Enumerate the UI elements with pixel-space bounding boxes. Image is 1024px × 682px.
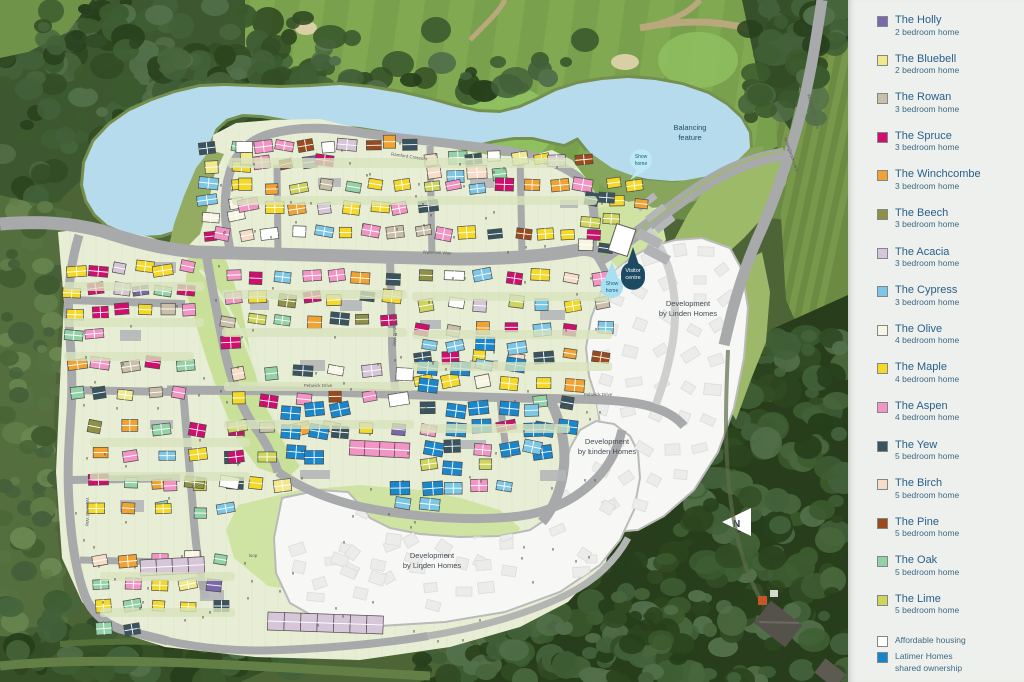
svg-text:home: home [606,288,619,294]
svg-text:Watermill Way: Watermill Way [423,250,453,256]
svg-text:feature: feature [678,133,701,142]
svg-text:home: home [635,161,648,167]
svg-text:Development: Development [585,437,630,446]
svg-text:centre: centre [625,275,640,281]
svg-text:by Linden Homes: by Linden Homes [659,309,718,318]
svg-text:by Linden Homes: by Linden Homes [578,447,637,456]
svg-text:by Linden Homes: by Linden Homes [403,561,462,570]
svg-text:Visitor: Visitor [625,268,640,274]
svg-text:Show: Show [635,154,648,160]
svg-text:Pebwick Drive: Pebwick Drive [584,392,613,397]
svg-text:loop: loop [249,553,258,558]
svg-text:Development: Development [410,551,455,560]
svg-text:Balancing: Balancing [674,123,707,132]
svg-text:Pebwick Drive: Pebwick Drive [304,383,333,388]
svg-text:Development: Development [666,299,711,308]
svg-text:Watermill Way: Watermill Way [85,498,90,527]
svg-text:Show: Show [606,281,619,287]
